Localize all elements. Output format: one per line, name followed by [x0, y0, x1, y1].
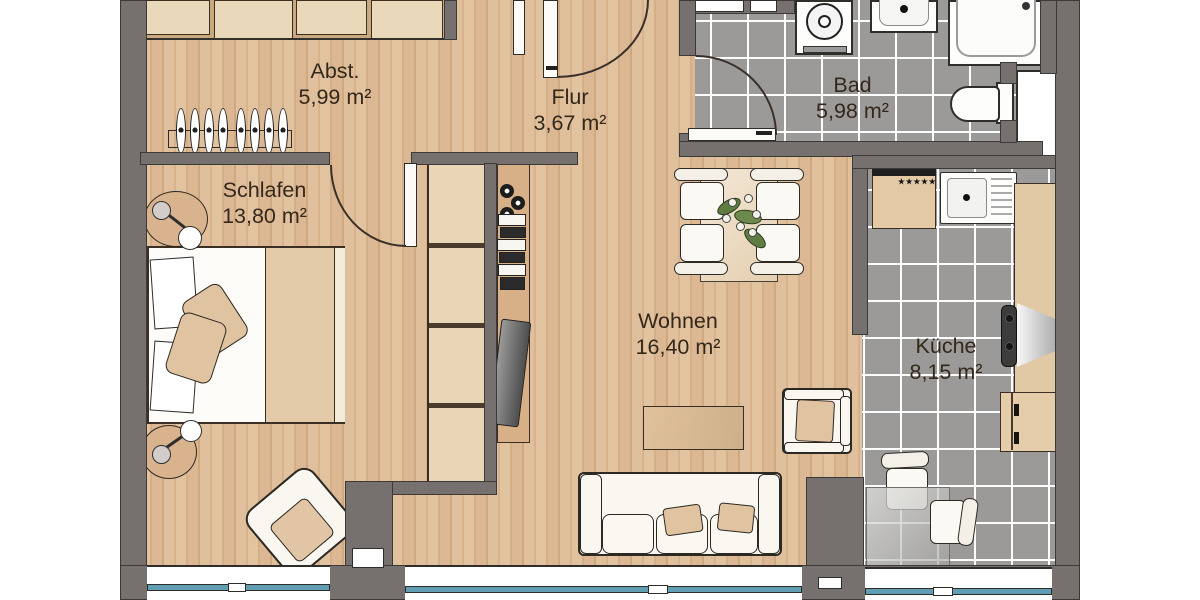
kitchen-window [865, 567, 1052, 600]
wall-pier [444, 0, 457, 40]
shelf-divider [429, 403, 485, 408]
room-area: 16,40 m² [588, 334, 768, 360]
book-stack [500, 277, 525, 290]
lamp-base [152, 201, 171, 220]
wardrobe-sliding-door [371, 0, 443, 39]
book-stack [497, 239, 526, 251]
exterior-wall-left [120, 0, 147, 600]
living-kitchen-wall [852, 157, 868, 335]
interior-wall [140, 152, 330, 165]
sink-drainboard [991, 178, 1012, 218]
shelf-divider [429, 243, 485, 248]
kitchen-base-cabinet [1000, 392, 1057, 452]
sofa-armrest [758, 474, 780, 554]
room-name: Abst. [245, 58, 425, 84]
coat-hanger [204, 108, 214, 154]
exterior-wall-right [1055, 0, 1080, 600]
coat-hanger [190, 108, 200, 154]
dining-chair [680, 182, 724, 220]
sofa-pillow [717, 502, 756, 534]
kitchen-top-wall [852, 155, 1060, 169]
flower-blossom [744, 194, 753, 203]
room-area: 5,99 m² [245, 84, 425, 110]
room-label-flur: Flur 3,67 m² [495, 84, 645, 136]
wardrobe-sliding-door [296, 0, 367, 35]
coat-hanger [236, 108, 246, 154]
living-armchair-cushion [795, 399, 835, 443]
radiator [352, 548, 384, 568]
bathroom-cabinet [688, 0, 744, 12]
room-label-kueche: Küche 8,15 m² [862, 333, 1030, 385]
room-label-wohnen: Wohnen 16,40 m² [588, 308, 768, 360]
window-mullion [648, 585, 668, 594]
coat-hanger [176, 108, 186, 154]
kitchen-chair [881, 451, 930, 469]
coffee-table [643, 406, 744, 450]
dining-chair [674, 168, 728, 181]
living-window [405, 565, 802, 600]
sofa-armrest [580, 474, 602, 554]
book-stack [498, 264, 526, 276]
bedroom-living-wall [484, 163, 497, 495]
freezer-star-rating: ★★★★★ [898, 177, 936, 186]
floor-plan: ★★★★★ [0, 0, 1200, 600]
candle [511, 196, 525, 210]
room-area: 5,98 m² [775, 98, 930, 124]
room-name: Wohnen [588, 308, 768, 334]
coat-hanger [218, 108, 228, 154]
room-label-abstellraum: Abst. 5,99 m² [245, 58, 425, 110]
kitchen-window-glass [865, 588, 1052, 595]
bathroom-cabinet [750, 0, 777, 12]
cabinet-divider [1011, 393, 1013, 450]
room-name: Flur [495, 84, 645, 110]
cabinet-handle [1014, 404, 1019, 416]
shelf-divider [429, 323, 485, 328]
room-area: 3,67 m² [495, 110, 645, 136]
bed-duvet [265, 248, 335, 422]
book-stack [498, 214, 526, 226]
dining-chair [750, 168, 804, 181]
room-area: 8,15 m² [862, 359, 1030, 385]
window-mullion [933, 587, 953, 596]
cabinet-handle [1014, 432, 1019, 444]
flower-blossom [728, 198, 737, 207]
refrigerator-top-strip [872, 169, 936, 176]
room-area: 13,80 m² [172, 203, 357, 229]
bathroom-sink-basin [879, 0, 929, 26]
room-name: Bad [775, 72, 930, 98]
wall-stub [1000, 120, 1017, 143]
stove-burner [1005, 314, 1014, 323]
lamp-shade [180, 420, 202, 442]
washing-machine-door-inner [818, 15, 831, 28]
wall-stub [1000, 62, 1017, 84]
toilet-bowl [950, 86, 1000, 122]
flower-blossom [722, 214, 731, 223]
room-label-schlafen: Schlafen 13,80 m² [172, 177, 357, 229]
dining-chair [756, 182, 800, 220]
coat-hanger [264, 108, 274, 154]
book-stack [499, 252, 525, 263]
room-name: Schlafen [172, 177, 357, 203]
radiator [818, 577, 842, 589]
sofa-seat-cushion [602, 514, 654, 554]
bed-footboard [334, 248, 345, 422]
bathroom-door-handle [756, 131, 772, 135]
wardrobe-sliding-door [214, 0, 293, 39]
room-label-bad: Bad 5,98 m² [775, 72, 930, 124]
living-armchair-armrest [784, 389, 844, 400]
dining-chair [674, 262, 728, 275]
candle [500, 184, 514, 198]
corner-wall-block [806, 477, 864, 577]
coat-hanger [250, 108, 260, 154]
shower-drain [1022, 2, 1030, 10]
wall-stub [1040, 0, 1057, 74]
room-name: Küche [862, 333, 1030, 359]
flower-blossom [748, 228, 757, 237]
bathroom-faucet [900, 5, 908, 13]
dining-chair [750, 262, 804, 275]
wardrobe-sliding-door [142, 0, 210, 35]
flower-blossom [752, 210, 761, 219]
living-window-glass [405, 586, 802, 593]
entry-door-handle [546, 66, 557, 70]
lamp-shade [178, 226, 202, 250]
window-mullion [228, 583, 246, 592]
flower-blossom [736, 222, 745, 231]
book-stack [500, 227, 526, 238]
bathroom-wall [679, 0, 696, 56]
sofa-pillow [662, 503, 704, 536]
living-armchair-backrest [840, 396, 851, 446]
dining-chair [680, 224, 724, 262]
washing-machine-panel [803, 46, 847, 53]
entry-door-sidelight [513, 0, 525, 55]
coat-hanger [278, 108, 288, 154]
lamp-base [152, 445, 171, 464]
kitchen-faucet [963, 194, 970, 201]
living-armchair-armrest [784, 442, 844, 453]
